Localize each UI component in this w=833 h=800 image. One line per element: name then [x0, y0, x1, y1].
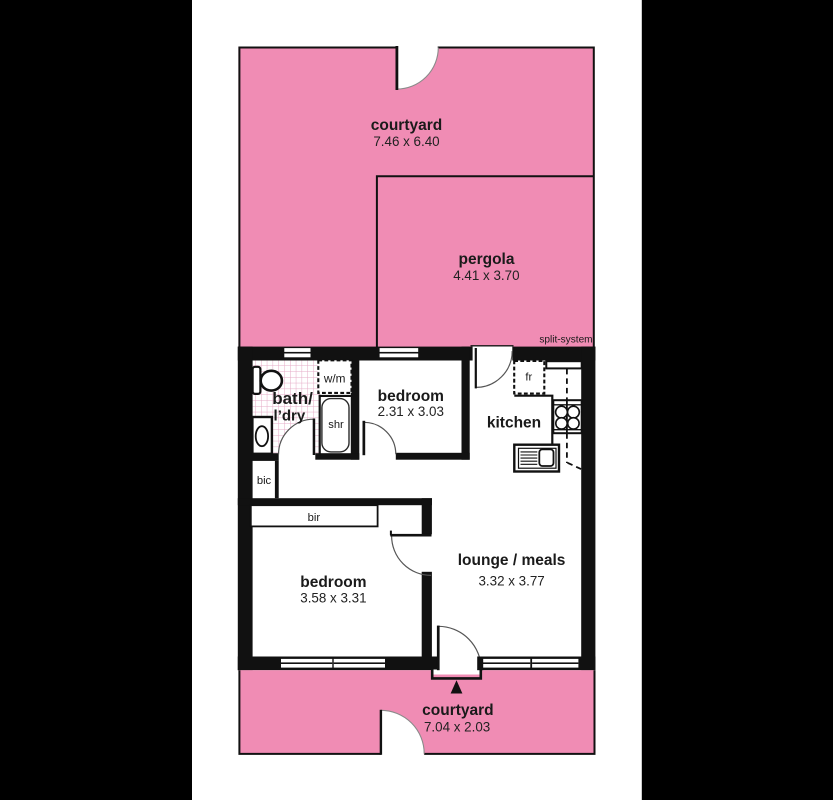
svg-text:bedroom: bedroom	[300, 574, 366, 591]
svg-text:split-system: split-system	[539, 334, 592, 345]
svg-text:3.32 x 3.77: 3.32 x 3.77	[478, 574, 544, 589]
svg-text:2.31 x 3.03: 2.31 x 3.03	[378, 404, 444, 419]
svg-text:kitchen: kitchen	[487, 414, 541, 431]
svg-text:l’dry: l’dry	[274, 408, 306, 425]
svg-text:courtyard: courtyard	[422, 702, 494, 719]
svg-text:bedroom: bedroom	[378, 388, 444, 405]
svg-text:w/m: w/m	[323, 371, 346, 385]
svg-text:7.04 x 2.03: 7.04 x 2.03	[424, 719, 490, 734]
svg-text:fr: fr	[525, 372, 532, 384]
svg-text:4.41 x 3.70: 4.41 x 3.70	[453, 268, 519, 283]
svg-text:3.58 x 3.31: 3.58 x 3.31	[300, 591, 366, 606]
svg-text:bath/: bath/	[272, 389, 313, 408]
svg-text:courtyard: courtyard	[371, 117, 443, 134]
svg-text:pergola: pergola	[459, 251, 515, 268]
svg-text:bic: bic	[257, 475, 272, 487]
svg-text:shr: shr	[328, 419, 344, 431]
svg-text:7.46 x 6.40: 7.46 x 6.40	[373, 134, 439, 149]
svg-text:lounge / meals: lounge / meals	[458, 552, 566, 569]
svg-text:bir: bir	[308, 512, 321, 524]
